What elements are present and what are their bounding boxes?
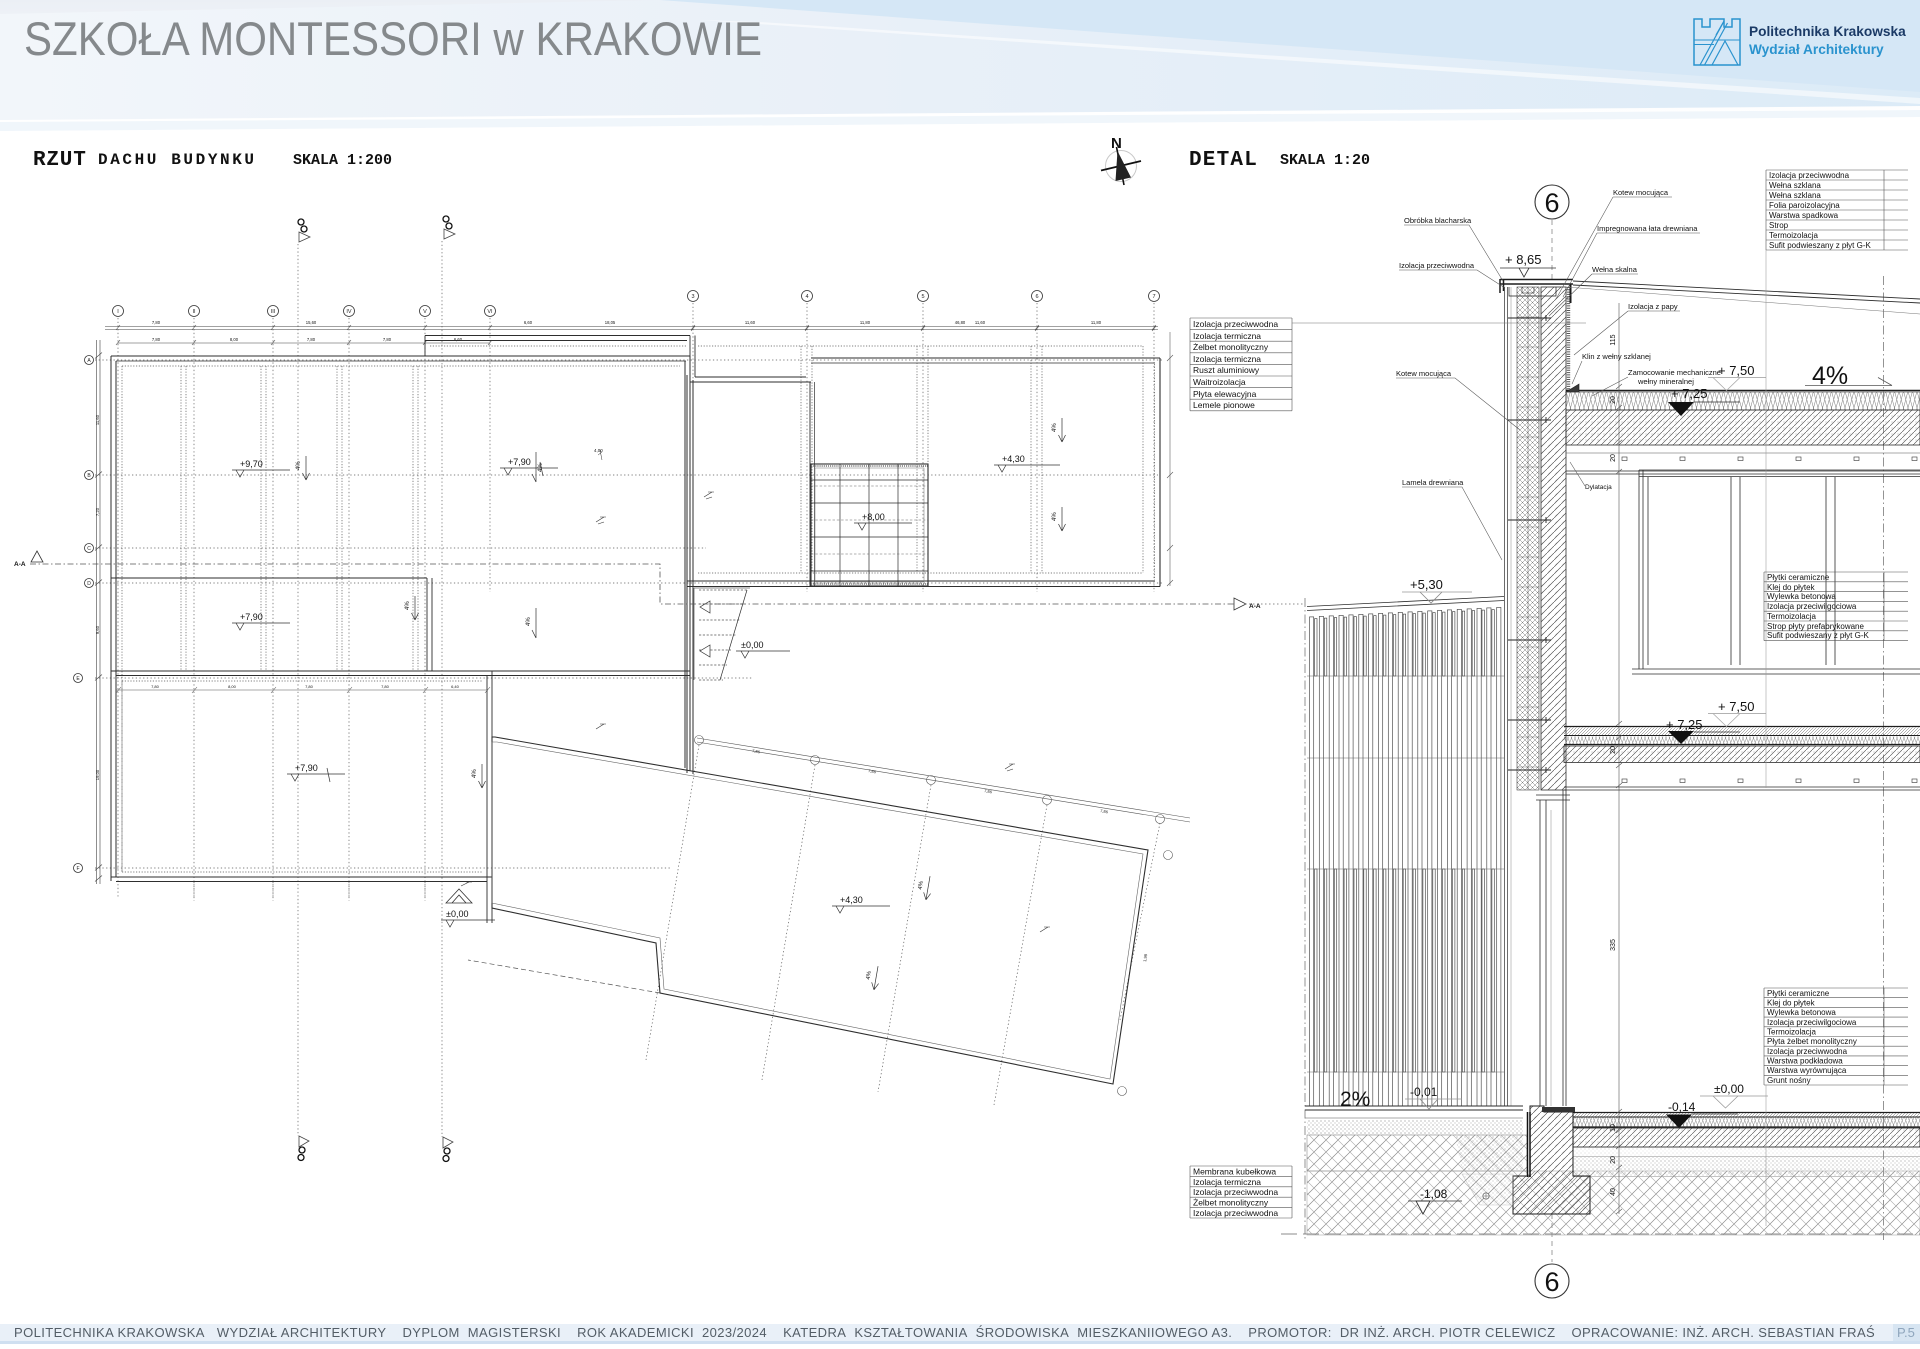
svg-text:Wylewka betonowa: Wylewka betonowa <box>1767 1008 1836 1017</box>
svg-text:1,98: 1,98 <box>1142 953 1148 962</box>
svg-text:4%: 4% <box>472 769 478 778</box>
svg-text:7,80: 7,80 <box>151 684 160 689</box>
svg-text:SKALA 1:200: SKALA 1:200 <box>293 152 392 169</box>
svg-text:7,80: 7,80 <box>305 684 314 689</box>
svg-text:7,80: 7,80 <box>307 337 316 342</box>
svg-text:40: 40 <box>1610 1188 1617 1196</box>
svg-text:6: 6 <box>1035 294 1038 300</box>
svg-text:SZKOŁA MONTESSORI w KRAKOWIE: SZKOŁA MONTESSORI w KRAKOWIE <box>24 12 762 65</box>
svg-text:4%: 4% <box>1052 512 1058 521</box>
svg-text:4%: 4% <box>918 880 926 890</box>
svg-text:+4,30: +4,30 <box>840 895 863 905</box>
svg-text:+7,90: +7,90 <box>508 457 531 467</box>
svg-text:Izolacja przeciwilgociowa: Izolacja przeciwilgociowa <box>1767 1018 1857 1027</box>
svg-text:A-A: A-A <box>14 561 26 568</box>
svg-text:Lamela drewniana: Lamela drewniana <box>1402 478 1464 487</box>
svg-text:Termoizolacja: Termoizolacja <box>1767 612 1816 621</box>
svg-text:Klej do płytek: Klej do płytek <box>1767 999 1816 1008</box>
svg-text:DETAL: DETAL <box>1189 149 1258 172</box>
svg-text:Izolacja termiczna: Izolacja termiczna <box>1193 331 1261 341</box>
svg-text:4%: 4% <box>526 617 532 626</box>
svg-text:Sufit podwieszany z płyt G-K: Sufit podwieszany z płyt G-K <box>1769 241 1871 250</box>
svg-text:4%: 4% <box>405 601 411 610</box>
svg-text:±0,00: ±0,00 <box>1714 1082 1744 1096</box>
svg-text:Membrana kubełkowa: Membrana kubełkowa <box>1193 1167 1276 1177</box>
svg-text:Płyta elewacyjna: Płyta elewacyjna <box>1193 389 1257 399</box>
svg-text:Grunt nośny: Grunt nośny <box>1767 1076 1811 1085</box>
svg-text:Izolacja przeciwwodna: Izolacja przeciwwodna <box>1193 1187 1278 1197</box>
svg-text:Wełna skalna: Wełna skalna <box>1592 265 1638 274</box>
svg-text:8,00: 8,00 <box>228 684 237 689</box>
svg-text:7,80: 7,80 <box>152 337 161 342</box>
svg-text:2%: 2% <box>1340 1088 1370 1111</box>
svg-text:Izolacja termiczna: Izolacja termiczna <box>1193 1177 1261 1187</box>
svg-text:4%: 4% <box>538 463 544 472</box>
svg-text:E: E <box>76 676 80 682</box>
svg-text:+7,90: +7,90 <box>240 612 263 622</box>
svg-text:+4,30: +4,30 <box>1002 454 1025 464</box>
svg-text:Izolacja termiczna: Izolacja termiczna <box>1193 354 1261 364</box>
svg-text:Strop: Strop <box>1769 221 1789 230</box>
svg-text:+ 8,65: + 8,65 <box>1505 252 1542 267</box>
svg-text:Strop płyty prefabrykowane: Strop płyty prefabrykowane <box>1767 622 1864 631</box>
svg-text:Termoizolacja: Termoizolacja <box>1769 231 1818 240</box>
svg-text:Dylatacja: Dylatacja <box>1585 484 1612 491</box>
svg-text:20: 20 <box>1610 396 1617 404</box>
svg-text:I: I <box>117 309 119 315</box>
svg-text:Ruszt aluminiowy: Ruszt aluminiowy <box>1193 365 1260 375</box>
svg-text:4%: 4% <box>296 461 302 470</box>
svg-text:Folia paroizolacyjna: Folia paroizolacyjna <box>1769 201 1840 210</box>
svg-text:20: 20 <box>1610 1156 1617 1164</box>
svg-text:Warstwa podkładowa: Warstwa podkładowa <box>1767 1057 1843 1066</box>
svg-text:5: 5 <box>921 294 924 300</box>
svg-text:-0,14: -0,14 <box>1668 1100 1696 1114</box>
svg-text:III: III <box>271 309 276 315</box>
svg-text:Żelbet monolityczny: Żelbet monolityczny <box>1193 1198 1269 1208</box>
svg-text:Izolacja przeciwwodna: Izolacja przeciwwodna <box>1767 1047 1848 1056</box>
svg-text:wełny mineralnej: wełny mineralnej <box>1637 377 1694 386</box>
svg-text:7,80: 7,80 <box>381 684 390 689</box>
svg-text:Klin z wełny szklanej: Klin z wełny szklanej <box>1582 352 1651 361</box>
svg-text:7,86: 7,86 <box>1100 808 1109 814</box>
svg-text:Wełna szklana: Wełna szklana <box>1769 191 1821 200</box>
svg-text:+5,30: +5,30 <box>1410 577 1443 592</box>
svg-text:F: F <box>76 866 79 872</box>
svg-text:+ 7,50: + 7,50 <box>1718 699 1755 714</box>
svg-text:VI: VI <box>487 309 493 315</box>
svg-text:46,80: 46,80 <box>955 320 966 325</box>
svg-text:4,00: 4,00 <box>594 448 603 453</box>
svg-text:C: C <box>87 546 91 552</box>
svg-text:DACHU BUDYNKU: DACHU BUDYNKU <box>98 151 257 169</box>
svg-text:11,80: 11,80 <box>1091 320 1102 325</box>
svg-text:20: 20 <box>1610 746 1617 754</box>
svg-text:3: 3 <box>691 294 694 300</box>
svg-text:A-A: A-A <box>1249 603 1261 610</box>
svg-text:Politechnika Krakowska: Politechnika Krakowska <box>1749 24 1906 39</box>
svg-text:Kotew mocująca: Kotew mocująca <box>1613 188 1669 197</box>
svg-text:D: D <box>87 581 91 587</box>
svg-text:II: II <box>192 309 196 315</box>
svg-text:19,00: 19,00 <box>95 769 100 780</box>
svg-text:7,86: 7,86 <box>868 768 877 774</box>
svg-text:Izolacja przeciwilgociowa: Izolacja przeciwilgociowa <box>1767 602 1857 611</box>
svg-text:Izolacja przeciwwodna: Izolacja przeciwwodna <box>1769 171 1850 180</box>
svg-text:Izolacja przeciwwodna: Izolacja przeciwwodna <box>1399 261 1475 270</box>
svg-text:Wydział Architektury: Wydział Architektury <box>1749 42 1884 57</box>
svg-text:RZUT: RZUT <box>33 149 87 172</box>
svg-text:7: 7 <box>1152 294 1155 300</box>
svg-text:11,60: 11,60 <box>95 414 100 425</box>
svg-text:9,60: 9,60 <box>95 625 100 634</box>
svg-text:8,00: 8,00 <box>230 337 239 342</box>
svg-text:4%: 4% <box>1052 423 1058 432</box>
svg-text:11,60: 11,60 <box>975 320 986 325</box>
svg-text:Lemele pionowe: Lemele pionowe <box>1193 400 1255 410</box>
svg-text:Impregnowana łata drewniana: Impregnowana łata drewniana <box>1597 224 1698 233</box>
svg-text:Termoizolacja: Termoizolacja <box>1767 1028 1816 1037</box>
svg-text:±0,00: ±0,00 <box>741 640 763 650</box>
svg-text:335: 335 <box>1610 939 1617 951</box>
svg-text:+9,70: +9,70 <box>240 459 263 469</box>
svg-text:Płytki ceramiczne: Płytki ceramiczne <box>1767 573 1830 582</box>
svg-text:7,80: 7,80 <box>383 337 392 342</box>
svg-text:Klej do płytek: Klej do płytek <box>1767 583 1816 592</box>
svg-text:B: B <box>87 473 91 479</box>
svg-text:7,86: 7,86 <box>984 788 993 794</box>
svg-text:-1,08: -1,08 <box>1420 1187 1448 1201</box>
svg-text:Wylewka betonowa: Wylewka betonowa <box>1767 592 1836 601</box>
svg-text:4%: 4% <box>866 970 874 980</box>
svg-text:Izolacja przeciwwodna: Izolacja przeciwwodna <box>1193 319 1278 329</box>
svg-text:10: 10 <box>1610 1124 1617 1132</box>
svg-text:15,60: 15,60 <box>306 320 317 325</box>
svg-text:-0,01: -0,01 <box>1410 1085 1438 1099</box>
svg-text:Wełna szklana: Wełna szklana <box>1769 181 1821 190</box>
svg-text:Kotew mocująca: Kotew mocująca <box>1396 369 1452 378</box>
svg-text:7,86: 7,86 <box>752 748 761 754</box>
svg-text:+ 7,25: + 7,25 <box>1671 386 1708 401</box>
svg-text:7,80: 7,80 <box>152 320 161 325</box>
svg-text:+7,90: +7,90 <box>295 763 318 773</box>
svg-text:18,05: 18,05 <box>605 320 616 325</box>
svg-text:7,20: 7,20 <box>95 507 100 516</box>
svg-text:Żelbet monolityczny: Żelbet monolityczny <box>1193 342 1269 352</box>
svg-text:Izolacja przeciwwodna: Izolacja przeciwwodna <box>1193 1208 1278 1218</box>
svg-text:6: 6 <box>1544 188 1559 218</box>
svg-text:11,60: 11,60 <box>745 320 756 325</box>
svg-text:Warstwa wyrównująca: Warstwa wyrównująca <box>1767 1066 1847 1075</box>
svg-text:6,60: 6,60 <box>454 337 463 342</box>
svg-text:POLITECHNIKA KRAKOWSKA WYDZI: POLITECHNIKA KRAKOWSKA WYDZIAŁ ARCHITEKT… <box>14 1325 1875 1340</box>
svg-text:6,60: 6,60 <box>524 320 533 325</box>
svg-text:A: A <box>87 358 91 364</box>
svg-text:±0,00: ±0,00 <box>446 909 468 919</box>
svg-text:Sufit podwieszany z płyt G-K: Sufit podwieszany z płyt G-K <box>1767 631 1869 640</box>
svg-text:V: V <box>423 309 427 315</box>
svg-text:+ 7,50: + 7,50 <box>1718 363 1755 378</box>
svg-text:+8,00: +8,00 <box>862 512 885 522</box>
svg-text:115: 115 <box>1610 334 1617 345</box>
svg-text:6,40: 6,40 <box>451 684 460 689</box>
svg-text:11,80: 11,80 <box>860 320 871 325</box>
svg-text:6: 6 <box>1544 1267 1559 1297</box>
svg-text:Izolacja z papy: Izolacja z papy <box>1628 302 1678 311</box>
svg-text:Płytki ceramiczne: Płytki ceramiczne <box>1767 989 1830 998</box>
svg-text:P.5: P.5 <box>1897 1325 1915 1340</box>
svg-text:+ 7,25: + 7,25 <box>1666 717 1703 732</box>
svg-text:Waitroizolacja: Waitroizolacja <box>1193 377 1246 387</box>
svg-text:4: 4 <box>805 294 808 300</box>
svg-text:Warstwa spadkowa: Warstwa spadkowa <box>1769 211 1839 220</box>
svg-text:IV: IV <box>346 309 352 315</box>
svg-text:Zamocowanie mechaniczne: Zamocowanie mechaniczne <box>1628 368 1721 377</box>
svg-text:20: 20 <box>1610 454 1617 462</box>
svg-text:SKALA 1:20: SKALA 1:20 <box>1280 152 1370 169</box>
svg-text:Płyta żelbet monolityczny: Płyta żelbet monolityczny <box>1767 1037 1857 1046</box>
svg-text:Obróbka blacharska: Obróbka blacharska <box>1404 216 1472 225</box>
